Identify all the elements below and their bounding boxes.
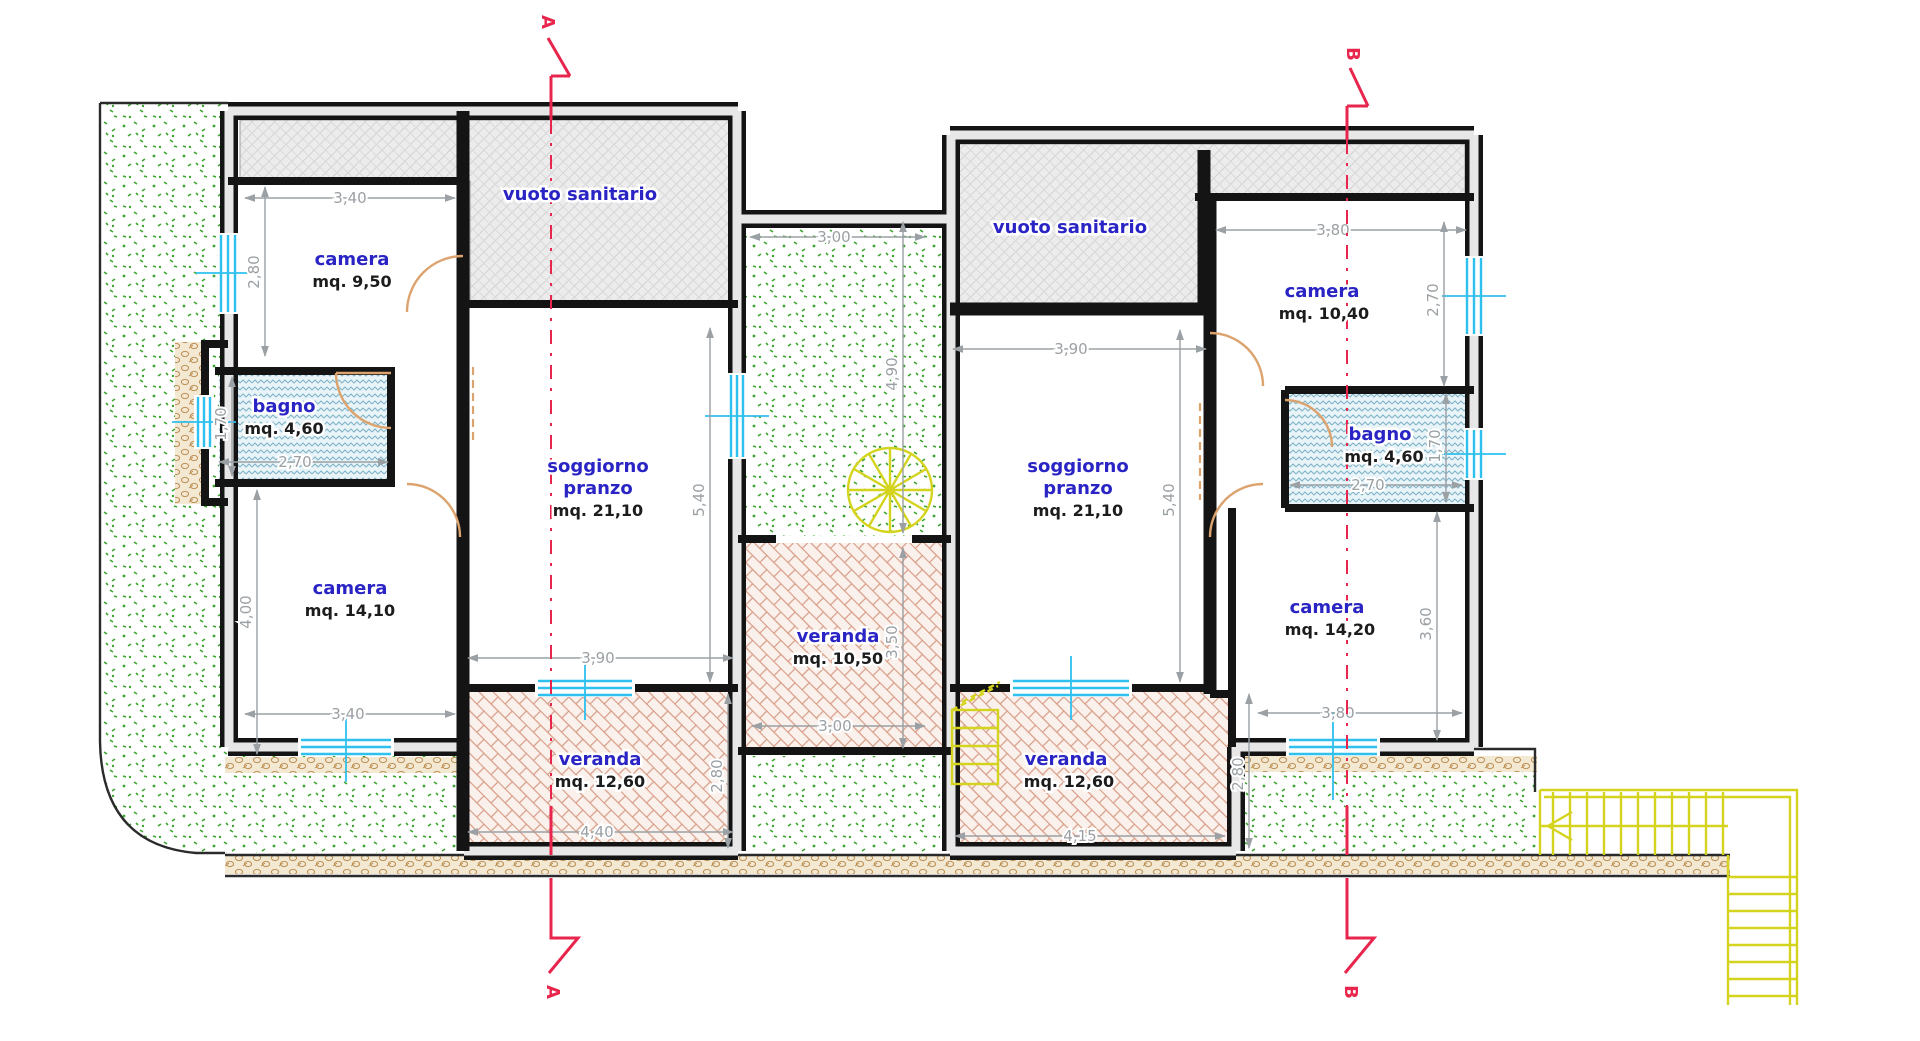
dim-label: 2,70 (1351, 476, 1384, 494)
section-letter: B (1340, 985, 1361, 999)
door-arc (1210, 333, 1263, 386)
dim-label: 3,40 (331, 705, 364, 723)
room-area-right-camera-2: mq. 14,20 (1285, 620, 1375, 639)
room-label-left-soggiorno-2: pranzo (563, 478, 633, 499)
room-label-center-veranda: veranda (797, 626, 880, 647)
dim-label: 4,90 (883, 357, 901, 390)
room-label-right-camera-1: camera (1285, 281, 1360, 302)
section-letter: A (542, 985, 563, 999)
dim-label: 4,40 (580, 823, 613, 841)
floor-plan-drawing: 3,40 2,80 1,70 2,70 4,00 3,40 3,90 5,40 … (0, 0, 1920, 1041)
room-area-right-veranda: mq. 12,60 (1024, 772, 1114, 791)
room-label-left-veranda: veranda (559, 749, 642, 770)
room-label-right-camera-2: camera (1290, 597, 1365, 618)
spiral-staircase (848, 448, 932, 532)
section-marker-a-bottom: A (542, 878, 578, 999)
room-label-right-veranda: veranda (1025, 749, 1108, 770)
dim-label: 2,80 (1229, 757, 1247, 790)
door-arc (407, 256, 463, 312)
room-label-left-camera-1: camera (315, 249, 390, 270)
window (1442, 256, 1506, 336)
dim-label: 3,90 (1054, 340, 1087, 358)
room-area-right-soggiorno: mq. 21,10 (1033, 501, 1123, 520)
dim-label: 2,70 (278, 453, 311, 471)
dim-label: 4,00 (237, 595, 255, 628)
room-label-left-vuoto: vuoto sanitario (503, 184, 657, 205)
room-label-right-bagno: bagno (1348, 424, 1411, 445)
dim-label: 5,40 (690, 483, 708, 516)
room-area-left-veranda: mq. 12,60 (555, 772, 645, 791)
dim-label: 3,90 (581, 649, 614, 667)
external-staircase (1540, 790, 1797, 1005)
dim-label: 3,80 (1316, 221, 1349, 239)
section-letter: B (1342, 47, 1363, 61)
room-area-left-camera-2: mq. 14,10 (305, 601, 395, 620)
room-area-center-veranda: mq. 10,50 (793, 649, 883, 668)
room-label-left-camera-2: camera (313, 578, 388, 599)
room-area-left-camera-1: mq. 9,50 (312, 272, 391, 291)
room-label-right-vuoto: vuoto sanitario (993, 217, 1147, 238)
room-area-right-camera-1: mq. 10,40 (1279, 304, 1369, 323)
dim-label: 2,80 (708, 759, 726, 792)
dim-label: 3,00 (817, 228, 850, 246)
door-arc (407, 484, 460, 537)
dim-label: 2,80 (245, 255, 263, 288)
dim-label: 1,70 (1426, 429, 1444, 462)
dim-label: 1,70 (212, 407, 230, 440)
dim-label: 5,40 (1160, 483, 1178, 516)
dim-label: 3,00 (818, 717, 851, 735)
room-area-right-bagno: mq. 4,60 (1344, 447, 1423, 466)
dim-label: 2,70 (1424, 283, 1442, 316)
door-arc (1210, 484, 1263, 537)
room-label-right-soggiorno-2: pranzo (1043, 478, 1113, 499)
dim-label: 3,50 (883, 625, 901, 658)
dim-label: 4,15 (1063, 827, 1096, 845)
room-label-right-soggiorno-1: soggiorno (1027, 456, 1128, 477)
dim-label: 3,40 (333, 189, 366, 207)
room-label-left-bagno: bagno (252, 396, 315, 417)
room-area-left-bagno: mq. 4,60 (244, 419, 323, 438)
room-label-left-soggiorno-1: soggiorno (547, 456, 648, 477)
floor-plan-canvas: 3,40 2,80 1,70 2,70 4,00 3,40 3,90 5,40 … (0, 0, 1920, 1041)
dim-label: 3,80 (1321, 704, 1354, 722)
dim-label: 3,60 (1417, 607, 1435, 640)
section-marker-b-bottom: B (1340, 878, 1374, 999)
section-letter: A (537, 15, 558, 29)
room-area-left-soggiorno: mq. 21,10 (553, 501, 643, 520)
